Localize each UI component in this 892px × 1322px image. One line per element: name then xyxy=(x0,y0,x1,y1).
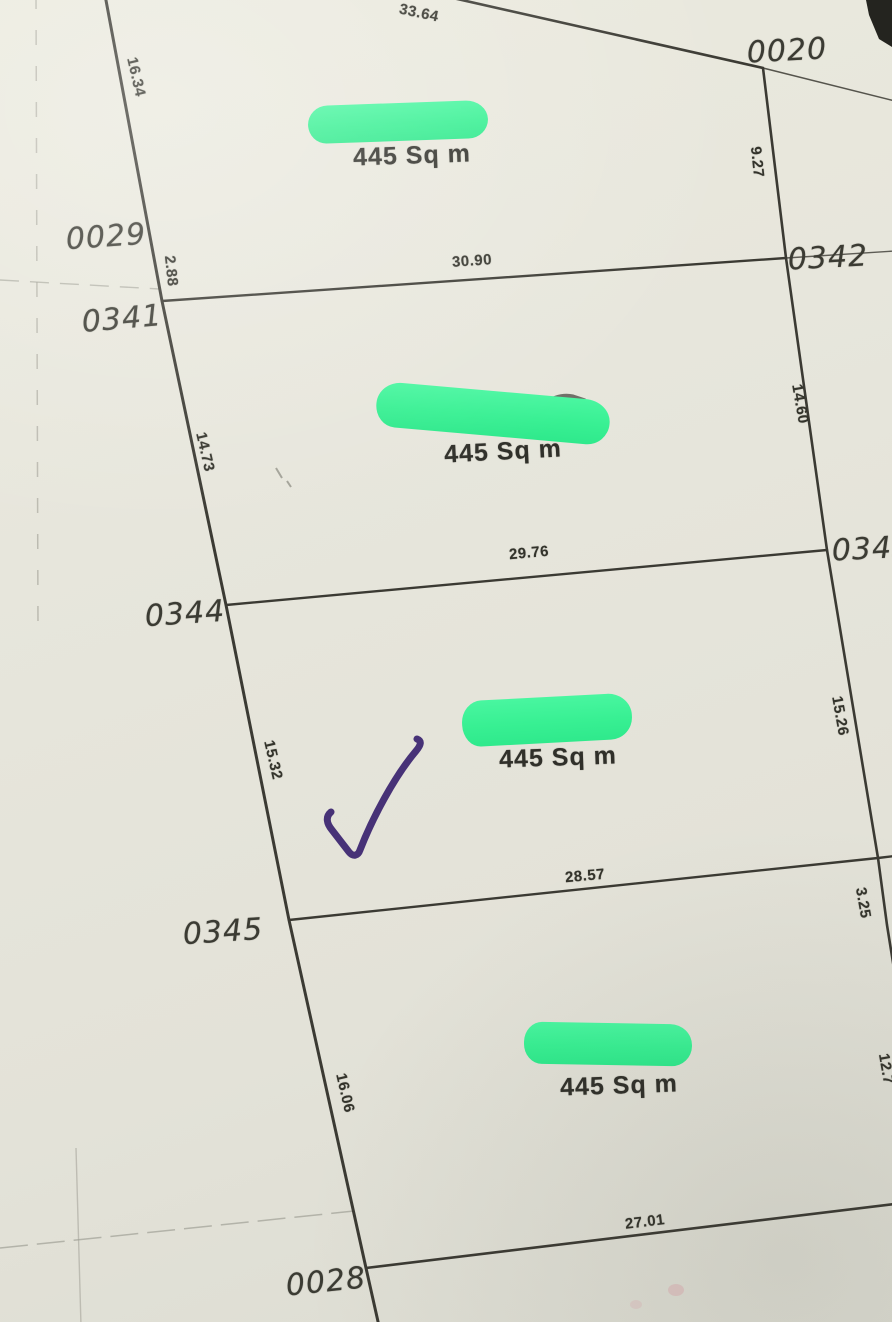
grid-reference-lines xyxy=(0,0,354,1322)
measurement-30-90: 30.90 xyxy=(451,251,492,271)
pencil-smudge xyxy=(276,468,291,487)
reference-line-horizontal xyxy=(0,280,159,289)
parcel-label-0343-clipped: 0343 xyxy=(831,529,892,568)
divider-28-57 xyxy=(289,856,892,920)
scan-artifact-dark-corner xyxy=(866,0,892,47)
boundary-bottom xyxy=(366,1204,892,1268)
reference-line-diagonal-bottom xyxy=(0,1211,354,1248)
purple-checkmark xyxy=(327,739,420,855)
reference-line-vertical-bottom xyxy=(76,1148,81,1322)
parcel-boundaries xyxy=(105,0,892,1322)
parcel-label-0020: 0020 xyxy=(746,31,828,70)
green-redaction-mark xyxy=(461,693,633,748)
reference-line-vertical-top xyxy=(36,0,38,628)
survey-linework xyxy=(0,0,892,1322)
parcel-label-0345: 0345 xyxy=(182,912,265,953)
scanned-survey-plan: 0020 0029 0341 0342 0344 0343 0345 0028 … xyxy=(0,0,892,1322)
green-redaction-mark xyxy=(524,1022,693,1067)
area-label-2: 445 Sq m xyxy=(443,434,562,469)
measurement-29-76: 29.76 xyxy=(508,543,549,563)
parcel-label-0344: 0344 xyxy=(144,594,227,635)
boundary-left xyxy=(105,0,379,1322)
area-label-4: 445 Sq m xyxy=(560,1069,679,1102)
parcel-label-0341: 0341 xyxy=(80,298,163,340)
parcel-label-0029: 0029 xyxy=(65,217,148,258)
measurement-9-27: 9.27 xyxy=(747,146,767,179)
boundary-right xyxy=(763,68,892,975)
measurement-28-57: 28.57 xyxy=(564,866,605,886)
green-redaction-mark xyxy=(307,100,488,144)
area-label-1: 445 Sq m xyxy=(353,139,472,172)
boundary-neighbor-top-right xyxy=(763,68,892,101)
boundary-top xyxy=(444,0,763,68)
parcel-label-0342: 0342 xyxy=(787,238,869,277)
area-label-3: 445 Sq m xyxy=(499,741,618,774)
measurement-2-88: 2.88 xyxy=(161,255,181,288)
